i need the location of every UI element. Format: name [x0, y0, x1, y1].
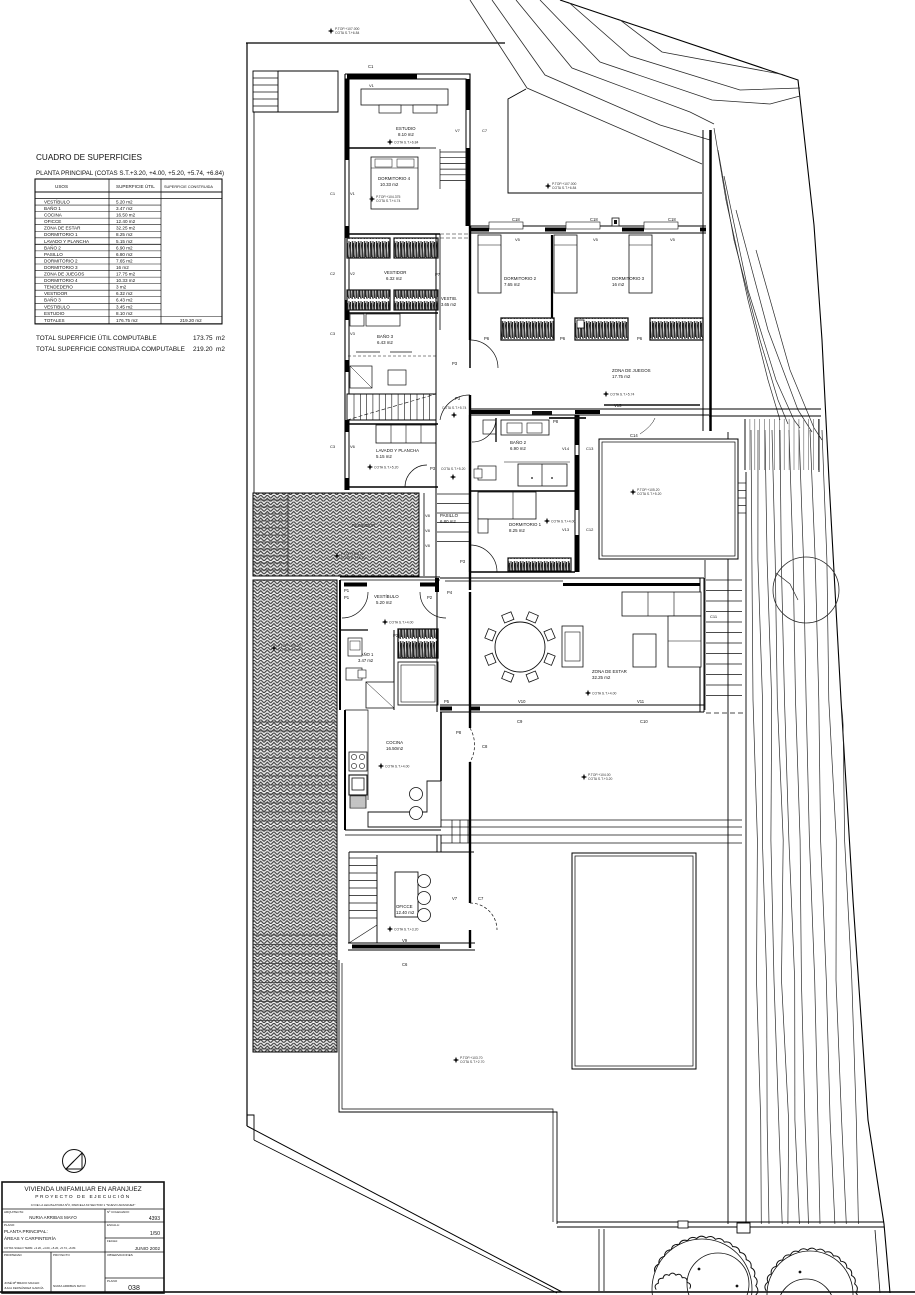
svg-text:BAÑO 3: BAÑO 3 [377, 334, 394, 339]
svg-text:ZONA DE JUEGOS: ZONA DE JUEGOS [44, 272, 84, 277]
svg-text:8.25 m2: 8.25 m2 [116, 232, 133, 237]
svg-text:PLANTA PRINCIPAL (COTAS S.T.+3: PLANTA PRINCIPAL (COTAS S.T.+3.20, +4.00… [36, 170, 224, 177]
svg-text:TOTAL SUPERFICIE CONSTRUIDA CO: TOTAL SUPERFICIE CONSTRUIDA COMPUTABLE [36, 346, 185, 353]
svg-text:V2: V2 [350, 271, 356, 276]
svg-text:P8: P8 [553, 419, 559, 424]
svg-text:V7: V7 [452, 896, 458, 901]
svg-text:P3: P3 [455, 396, 461, 401]
svg-text:VESTIBULO: VESTIBULO [44, 304, 70, 309]
svg-text:P6: P6 [637, 336, 643, 341]
svg-text:OBSERVACIONES: OBSERVACIONES [107, 1253, 133, 1257]
svg-text:m2: m2 [216, 335, 225, 342]
svg-text:LAVADO Y PLANCHA: LAVADO Y PLANCHA [44, 239, 90, 244]
svg-text:VESTIDOR: VESTIDOR [384, 270, 406, 275]
svg-text:6.32 m2: 6.32 m2 [116, 291, 133, 296]
svg-text:C11: C11 [710, 614, 718, 619]
svg-text:4393: 4393 [149, 1216, 160, 1222]
svg-text:OFICCE: OFICCE [396, 904, 413, 909]
svg-text:LAVADO Y PLANCHA: LAVADO Y PLANCHA [376, 448, 419, 453]
svg-text:3.47 m2: 3.47 m2 [116, 206, 133, 211]
svg-text:ARQUITECTA:: ARQUITECTA: [4, 1210, 24, 1214]
svg-text:V11: V11 [637, 699, 645, 704]
svg-text:PROPIEDAD: PROPIEDAD [4, 1253, 23, 1257]
svg-text:NURIA ARRIBAS MAYO: NURIA ARRIBAS MAYO [53, 1284, 86, 1288]
svg-text:3.45 m2: 3.45 m2 [116, 304, 133, 309]
svg-text:V6: V6 [350, 444, 356, 449]
svg-text:8.10 m2: 8.10 m2 [116, 311, 133, 316]
svg-text:COTA S.T.+5.20: COTA S.T.+5.20 [441, 467, 465, 471]
svg-text:V8: V8 [425, 528, 431, 533]
svg-text:3.47 m2: 3.47 m2 [358, 658, 374, 663]
svg-text:COTA S.T.+4.00: COTA S.T.+4.00 [385, 764, 409, 768]
svg-text:C18: C18 [512, 217, 520, 222]
svg-text:6.32 m2: 6.32 m2 [386, 276, 402, 281]
svg-text:P3: P3 [460, 559, 466, 564]
svg-text:C3: C3 [330, 331, 336, 336]
svg-text:C6: C6 [402, 962, 408, 967]
svg-text:COCINA: COCINA [386, 740, 403, 745]
svg-text:V5: V5 [515, 237, 521, 242]
svg-text:10.33 m2: 10.33 m2 [116, 278, 136, 283]
svg-text:6.80 m2: 6.80 m2 [116, 252, 133, 257]
svg-text:ÁREAS Y CARPINTERÍA: ÁREAS Y CARPINTERÍA [4, 1235, 57, 1241]
svg-text:P6: P6 [560, 336, 566, 341]
svg-text:C10: C10 [640, 719, 648, 724]
svg-text:TOTALES: TOTALES [44, 318, 65, 323]
svg-text:Nº COLEGIADO:: Nº COLEGIADO: [107, 1210, 130, 1214]
svg-text:m2: m2 [216, 346, 225, 353]
svg-text:V1: V1 [350, 191, 356, 196]
svg-text:P1: P1 [344, 588, 350, 593]
svg-text:32.25 m2: 32.25 m2 [592, 675, 611, 680]
svg-text:3 m2: 3 m2 [116, 285, 127, 290]
svg-text:6.90 m2: 6.90 m2 [116, 245, 133, 250]
svg-text:1/50: 1/50 [150, 1231, 160, 1237]
svg-text:C14: C14 [630, 433, 638, 438]
svg-text:TOTAL SUPERFICIE ÚTIL COMPUTAB: TOTAL SUPERFICIE ÚTIL COMPUTABLE [36, 333, 157, 342]
svg-text:DORMITORIO 1: DORMITORIO 1 [44, 232, 78, 237]
svg-text:10.33 m2: 10.33 m2 [380, 182, 399, 187]
svg-text:DORMITORIO 3: DORMITORIO 3 [44, 265, 78, 270]
svg-text:PLANO:: PLANO: [4, 1223, 15, 1227]
svg-text:173.75: 173.75 [193, 335, 213, 342]
svg-text:COTAS SUELO TERM. +3.20, +4.00: COTAS SUELO TERM. +3.20, +4.00, +5.20, +… [4, 1246, 76, 1250]
svg-text:16.50m2: 16.50m2 [386, 746, 404, 751]
svg-text:JULIA FERNÁNDEZ GARCÍA: JULIA FERNÁNDEZ GARCÍA [4, 1286, 44, 1290]
svg-text:C9: C9 [517, 719, 523, 724]
svg-text:VIVIENDA UNIFAMILIAR EN ARANJU: VIVIENDA UNIFAMILIAR EN ARANJUEZ [24, 1186, 141, 1193]
svg-text:CUADRO DE SUPERFICIES: CUADRO DE SUPERFICIES [36, 153, 143, 162]
svg-text:6.90 m2: 6.90 m2 [510, 446, 526, 451]
svg-text:8.25 m2: 8.25 m2 [509, 528, 525, 533]
svg-text:COTA S.T.+5.20: COTA S.T.+5.20 [341, 556, 365, 560]
svg-text:NURIA ARRIBAS MAYO: NURIA ARRIBAS MAYO [29, 1215, 77, 1220]
svg-text:COTA S.T.+3.20: COTA S.T.+3.20 [394, 927, 418, 931]
svg-text:32.25 m2: 32.25 m2 [116, 226, 136, 231]
svg-text:TENDEDERO: TENDEDERO [44, 285, 73, 290]
svg-text:ZONA DE ESTAR: ZONA DE ESTAR [44, 226, 81, 231]
svg-text:P1: P1 [344, 595, 350, 600]
svg-text:V10: V10 [518, 699, 526, 704]
svg-text:COTA S.T.+4.00: COTA S.T.+4.00 [551, 519, 575, 523]
svg-text:C1: C1 [330, 191, 336, 196]
svg-text:COTA S.T.+6.84: COTA S.T.+6.84 [394, 140, 418, 144]
svg-text:SUPERFICIE CONSTRUIDA: SUPERFICIE CONSTRUIDA [164, 185, 213, 189]
svg-text:C12: C12 [586, 527, 594, 532]
svg-text:6.80 m2: 6.80 m2 [440, 519, 456, 524]
svg-text:ESTUDIO: ESTUDIO [44, 311, 65, 316]
svg-text:3.65 m2: 3.65 m2 [441, 302, 457, 307]
svg-text:VESTIDOR: VESTIDOR [44, 291, 68, 296]
svg-text:PLANTA PRINCIPAL:: PLANTA PRINCIPAL: [4, 1229, 48, 1234]
svg-text:C18: C18 [590, 217, 598, 222]
svg-text:C8: C8 [482, 744, 488, 749]
svg-text:P3: P3 [452, 361, 458, 366]
svg-text:P6: P6 [484, 336, 490, 341]
svg-text:FECHA:: FECHA: [107, 1239, 118, 1243]
svg-text:COTA S.T.+4.00: COTA S.T.+4.00 [592, 691, 616, 695]
svg-text:C/ DE LA LEGISLATURA Nº2, PARC: C/ DE LA LEGISLATURA Nº2, PARCELA 63 SEC… [31, 1203, 136, 1207]
svg-text:V3: V3 [350, 331, 356, 336]
svg-text:PASILLO: PASILLO [44, 252, 63, 257]
svg-text:C18: C18 [668, 217, 676, 222]
svg-text:P3: P3 [430, 466, 436, 471]
svg-text:P4: P4 [447, 590, 453, 595]
svg-text:ESTUDIO: ESTUDIO [396, 126, 416, 131]
svg-text:SUPERFICIE ÚTIL: SUPERFICIE ÚTIL [116, 183, 155, 189]
svg-text:038: 038 [128, 1285, 140, 1292]
svg-text:COTA S.T.+6.84: COTA S.T.+6.84 [335, 31, 359, 35]
svg-text:BAÑO 2: BAÑO 2 [510, 440, 527, 445]
svg-text:VESTIB.: VESTIB. [441, 296, 457, 301]
svg-text:V14: V14 [562, 446, 570, 451]
svg-text:PROYECTO DE EJECUCIÓN: PROYECTO DE EJECUCIÓN [35, 1193, 130, 1200]
svg-text:V1: V1 [369, 83, 375, 88]
svg-text:V9: V9 [402, 938, 408, 943]
svg-text:P5: P5 [444, 699, 450, 704]
svg-text:16 m2: 16 m2 [116, 265, 129, 270]
svg-text:COTA S.T.+4.74: COTA S.T.+4.74 [376, 199, 400, 203]
svg-text:219.20: 219.20 [193, 346, 213, 353]
svg-text:COTA S.T.+4.00: COTA S.T.+4.00 [278, 648, 302, 652]
svg-text:COTA S.T.+5.74: COTA S.T.+5.74 [610, 392, 634, 396]
svg-text:V13: V13 [562, 527, 570, 532]
svg-text:DORMITORIO 3: DORMITORIO 3 [612, 276, 645, 281]
svg-text:7.65 m2: 7.65 m2 [116, 258, 133, 263]
svg-text:USOS: USOS [55, 184, 68, 189]
svg-text:PASILLO: PASILLO [440, 513, 459, 518]
svg-text:6.43 m2: 6.43 m2 [116, 298, 133, 303]
svg-text:P2: P2 [427, 595, 433, 600]
svg-text:7.65 m2: 7.65 m2 [504, 282, 520, 287]
svg-text:C2: C2 [330, 271, 336, 276]
svg-text:ZONA DE JUEGOS: ZONA DE JUEGOS [612, 368, 651, 373]
svg-text:PROYECTO: PROYECTO [53, 1253, 70, 1257]
svg-text:ZONA DE ESTAR: ZONA DE ESTAR [592, 669, 627, 674]
svg-text:COTA S.T.+5.20: COTA S.T.+5.20 [637, 492, 661, 496]
svg-text:176.75 m2: 176.75 m2 [116, 318, 138, 323]
svg-text:DORMITORIO 4: DORMITORIO 4 [378, 176, 411, 181]
svg-text:C7: C7 [482, 128, 488, 133]
svg-text:OFICCE: OFICCE [44, 219, 61, 224]
svg-text:ESCALA:: ESCALA: [107, 1223, 120, 1227]
svg-text:16.50 m2: 16.50 m2 [116, 213, 136, 218]
svg-text:COTA S.T.+2.70: COTA S.T.+2.70 [460, 1060, 484, 1064]
svg-text:COTA S.T.+5.20: COTA S.T.+5.20 [374, 465, 398, 469]
svg-text:C3: C3 [330, 444, 336, 449]
svg-text:COCINA: COCINA [44, 213, 63, 218]
svg-text:12.40 m2: 12.40 m2 [116, 219, 136, 224]
svg-text:5.20 m2: 5.20 m2 [116, 199, 133, 204]
svg-text:VESTÍBULO: VESTÍBULO [44, 198, 70, 204]
svg-text:COTA S.T.+5.74: COTA S.T.+5.74 [442, 406, 466, 410]
svg-text:C1: C1 [368, 64, 374, 69]
svg-text:P8: P8 [456, 730, 462, 735]
svg-text:DORMITORIO 2: DORMITORIO 2 [44, 258, 78, 263]
svg-text:COTA S.T.+3.20: COTA S.T.+3.20 [588, 777, 612, 781]
svg-text:DORMITORIO 1: DORMITORIO 1 [509, 522, 542, 527]
svg-text:DORMITORIO 2: DORMITORIO 2 [504, 276, 537, 281]
svg-text:JUNIO 2002: JUNIO 2002 [135, 1246, 161, 1251]
svg-text:BAÑO 2: BAÑO 2 [44, 244, 61, 250]
svg-text:C7: C7 [478, 896, 484, 901]
svg-text:V7: V7 [455, 128, 461, 133]
svg-text:VESTÍBULO: VESTÍBULO [374, 594, 399, 599]
svg-text:6.43 m2: 6.43 m2 [377, 340, 393, 345]
svg-text:DORMITORIO 4: DORMITORIO 4 [44, 278, 78, 283]
svg-text:JOSÉ Mª BRAVO MACHO: JOSÉ Mª BRAVO MACHO [4, 1280, 40, 1285]
svg-text:5.15 m2: 5.15 m2 [116, 239, 133, 244]
svg-text:V8: V8 [425, 543, 431, 548]
svg-text:17.75 m2: 17.75 m2 [612, 374, 631, 379]
svg-text:17.75 m2: 17.75 m2 [116, 272, 136, 277]
svg-text:8.10 m2: 8.10 m2 [398, 132, 414, 137]
svg-text:BAÑO 1: BAÑO 1 [44, 205, 61, 211]
svg-text:COTA S.T.+6.84: COTA S.T.+6.84 [552, 186, 576, 190]
svg-text:V8: V8 [425, 513, 431, 518]
svg-text:5.20 m2: 5.20 m2 [376, 600, 392, 605]
svg-text:5.15 m2: 5.15 m2 [376, 454, 392, 459]
svg-text:C13: C13 [586, 446, 594, 451]
svg-text:COTA S.T.+4.00: COTA S.T.+4.00 [389, 620, 413, 624]
svg-text:V5: V5 [670, 237, 676, 242]
svg-text:12.40 m2: 12.40 m2 [396, 910, 415, 915]
svg-text:V5: V5 [593, 237, 599, 242]
svg-text:219.20 m2: 219.20 m2 [180, 318, 202, 323]
svg-text:BAÑO 3: BAÑO 3 [44, 297, 61, 303]
svg-text:PLANO: PLANO [107, 1279, 118, 1283]
svg-text:16 m2: 16 m2 [612, 282, 625, 287]
svg-text:RECIBIDOR: RECIBIDOR [352, 523, 375, 528]
